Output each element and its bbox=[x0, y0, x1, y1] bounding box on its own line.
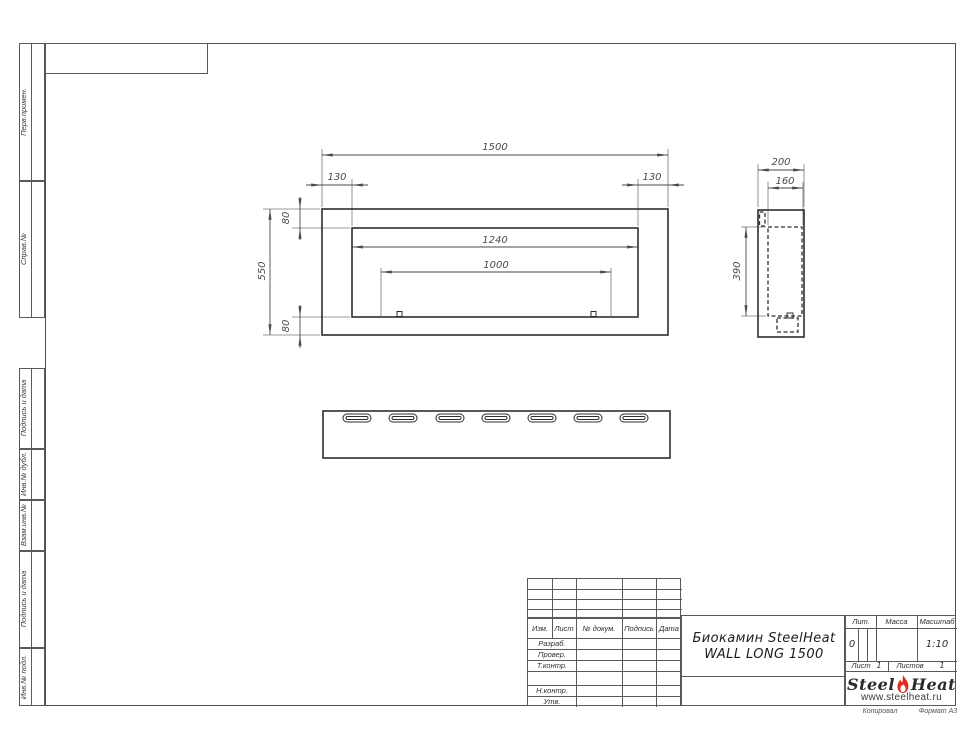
row-label-razrab: Разраб. bbox=[528, 638, 576, 649]
drawing-sheet: 1500 130 130 550 80 80 1240 1000 200 160… bbox=[0, 0, 970, 749]
margin-label-inv-podl: Инв.№ подл. bbox=[19, 627, 31, 727]
list-label: Лист bbox=[848, 661, 874, 671]
massa-label: Масса bbox=[876, 616, 917, 628]
divider-line bbox=[31, 368, 32, 706]
lit-label: Лит. bbox=[846, 616, 876, 628]
listov-label: Листов bbox=[890, 661, 930, 671]
col-header-doc: № докум. bbox=[576, 619, 622, 638]
divider-line bbox=[656, 579, 657, 619]
masshtab-value: 1:10 bbox=[917, 628, 957, 661]
title-block-name-cell: Биокамин SteelHeat WALL LONG 1500 bbox=[681, 615, 845, 706]
row-label-prover: Провер. bbox=[528, 649, 576, 660]
row-label-nkontr: Н.контр. bbox=[528, 685, 576, 696]
divider-line bbox=[858, 628, 859, 661]
drawing-title: Биокамин SteelHeat WALL LONG 1500 bbox=[682, 616, 846, 676]
list-value: 1 bbox=[872, 661, 886, 671]
masshtab-label: Масштаб bbox=[917, 616, 957, 628]
logo-website: www.steelheat.ru bbox=[861, 692, 942, 703]
col-header-podpis: Подпись bbox=[622, 619, 656, 638]
format-note: Формат А3 bbox=[903, 708, 970, 715]
drawing-title-line2: WALL LONG 1500 bbox=[704, 647, 823, 662]
top-left-box bbox=[45, 43, 208, 74]
sheet-frame bbox=[45, 43, 956, 706]
col-header-izm: Изм. bbox=[528, 619, 552, 638]
divider-line bbox=[552, 579, 553, 619]
row-label-utv: Утв. bbox=[528, 696, 576, 707]
lit-value: 0 bbox=[846, 628, 858, 661]
row-label-tkontr: Т.контр. bbox=[528, 660, 576, 671]
title-block-right-section: Лит. Масса Масштаб 0 1:10 Лист 1 Листов … bbox=[845, 615, 956, 706]
divider-line bbox=[682, 676, 846, 677]
divider-line bbox=[528, 671, 682, 672]
divider-line bbox=[622, 579, 623, 619]
divider-line bbox=[888, 661, 889, 671]
margin-label-sprav-no: Справ.№ bbox=[19, 199, 31, 299]
col-header-list: Лист bbox=[552, 619, 576, 638]
divider-line bbox=[31, 43, 32, 318]
col-header-data: Дата bbox=[656, 619, 682, 638]
divider-line bbox=[867, 628, 868, 661]
divider-line bbox=[576, 579, 577, 619]
company-logo: Steel Heat www.steelheat.ru bbox=[846, 671, 957, 707]
title-block-revision-table bbox=[527, 578, 681, 618]
listov-value: 1 bbox=[930, 661, 954, 671]
drawing-title-line1: Биокамин SteelHeat bbox=[692, 631, 835, 646]
title-block-signature-table: Изм. Лист № докум. Подпись Дата Разраб. … bbox=[527, 618, 681, 706]
margin-label-perv-primen: Перв.примен. bbox=[19, 62, 31, 162]
